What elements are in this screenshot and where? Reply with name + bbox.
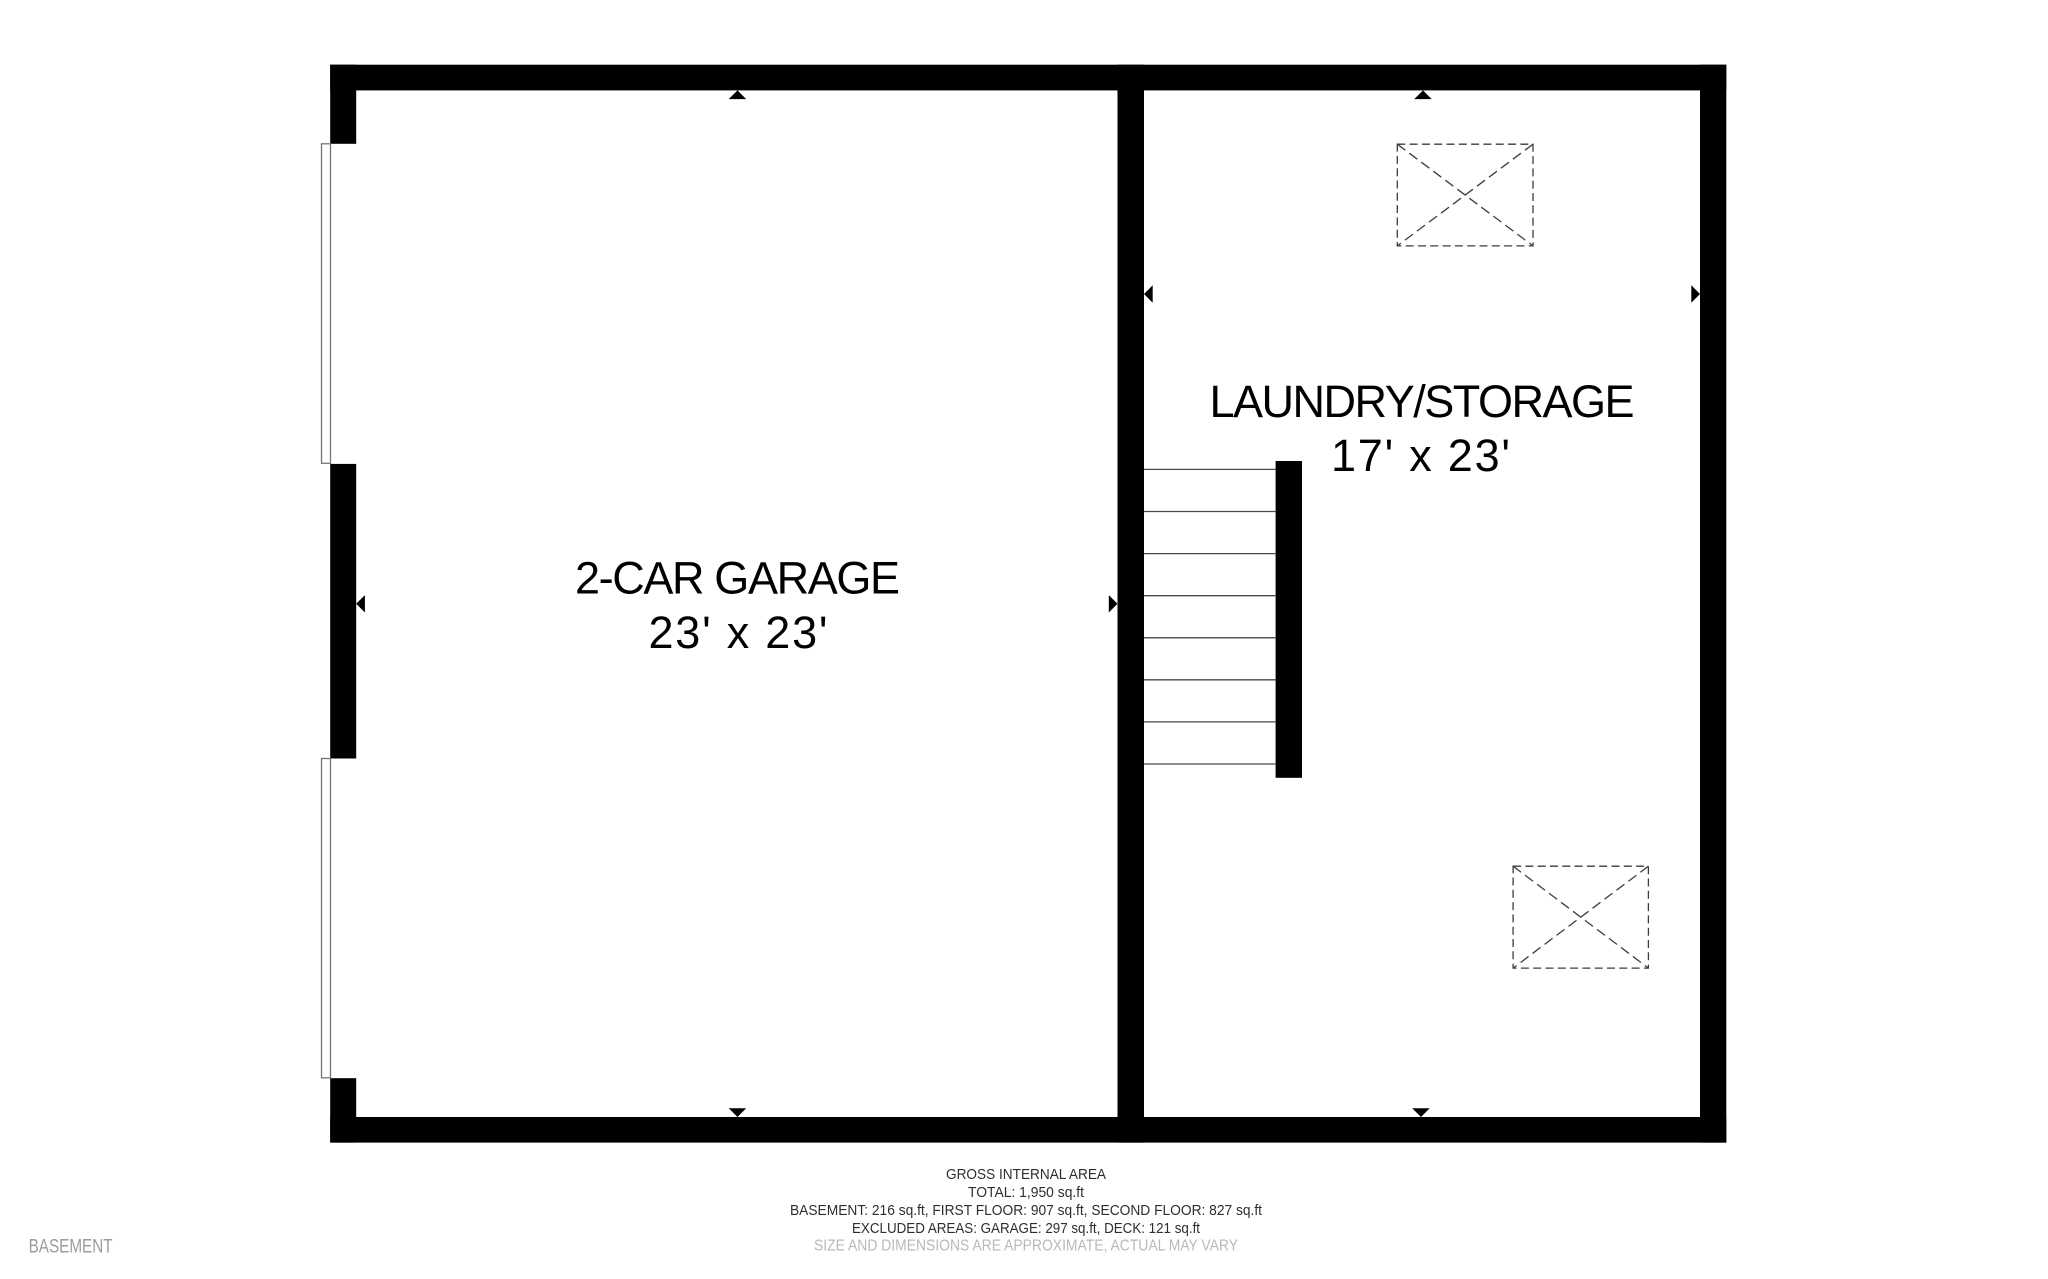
svg-text:23' x 23': 23' x 23' — [649, 607, 828, 658]
svg-text:2-CAR GARAGE: 2-CAR GARAGE — [575, 553, 900, 604]
svg-text:BASEMENT: BASEMENT — [29, 1236, 113, 1258]
svg-text:LAUNDRY/STORAGE: LAUNDRY/STORAGE — [1210, 376, 1635, 427]
svg-text:TOTAL: 1,950 sq.ft: TOTAL: 1,950 sq.ft — [968, 1184, 1085, 1201]
svg-text:GROSS INTERNAL AREA: GROSS INTERNAL AREA — [946, 1166, 1106, 1183]
svg-text:EXCLUDED AREAS: GARAGE: 297 sq: EXCLUDED AREAS: GARAGE: 297 sq.ft, DECK:… — [852, 1220, 1201, 1237]
svg-text:17' x 23': 17' x 23' — [1331, 430, 1510, 481]
svg-text:BASEMENT: 216 sq.ft, FIRST FLO: BASEMENT: 216 sq.ft, FIRST FLOOR: 907 sq… — [790, 1202, 1263, 1219]
svg-text:SIZE AND DIMENSIONS ARE APPROX: SIZE AND DIMENSIONS ARE APPROXIMATE, ACT… — [814, 1238, 1238, 1255]
